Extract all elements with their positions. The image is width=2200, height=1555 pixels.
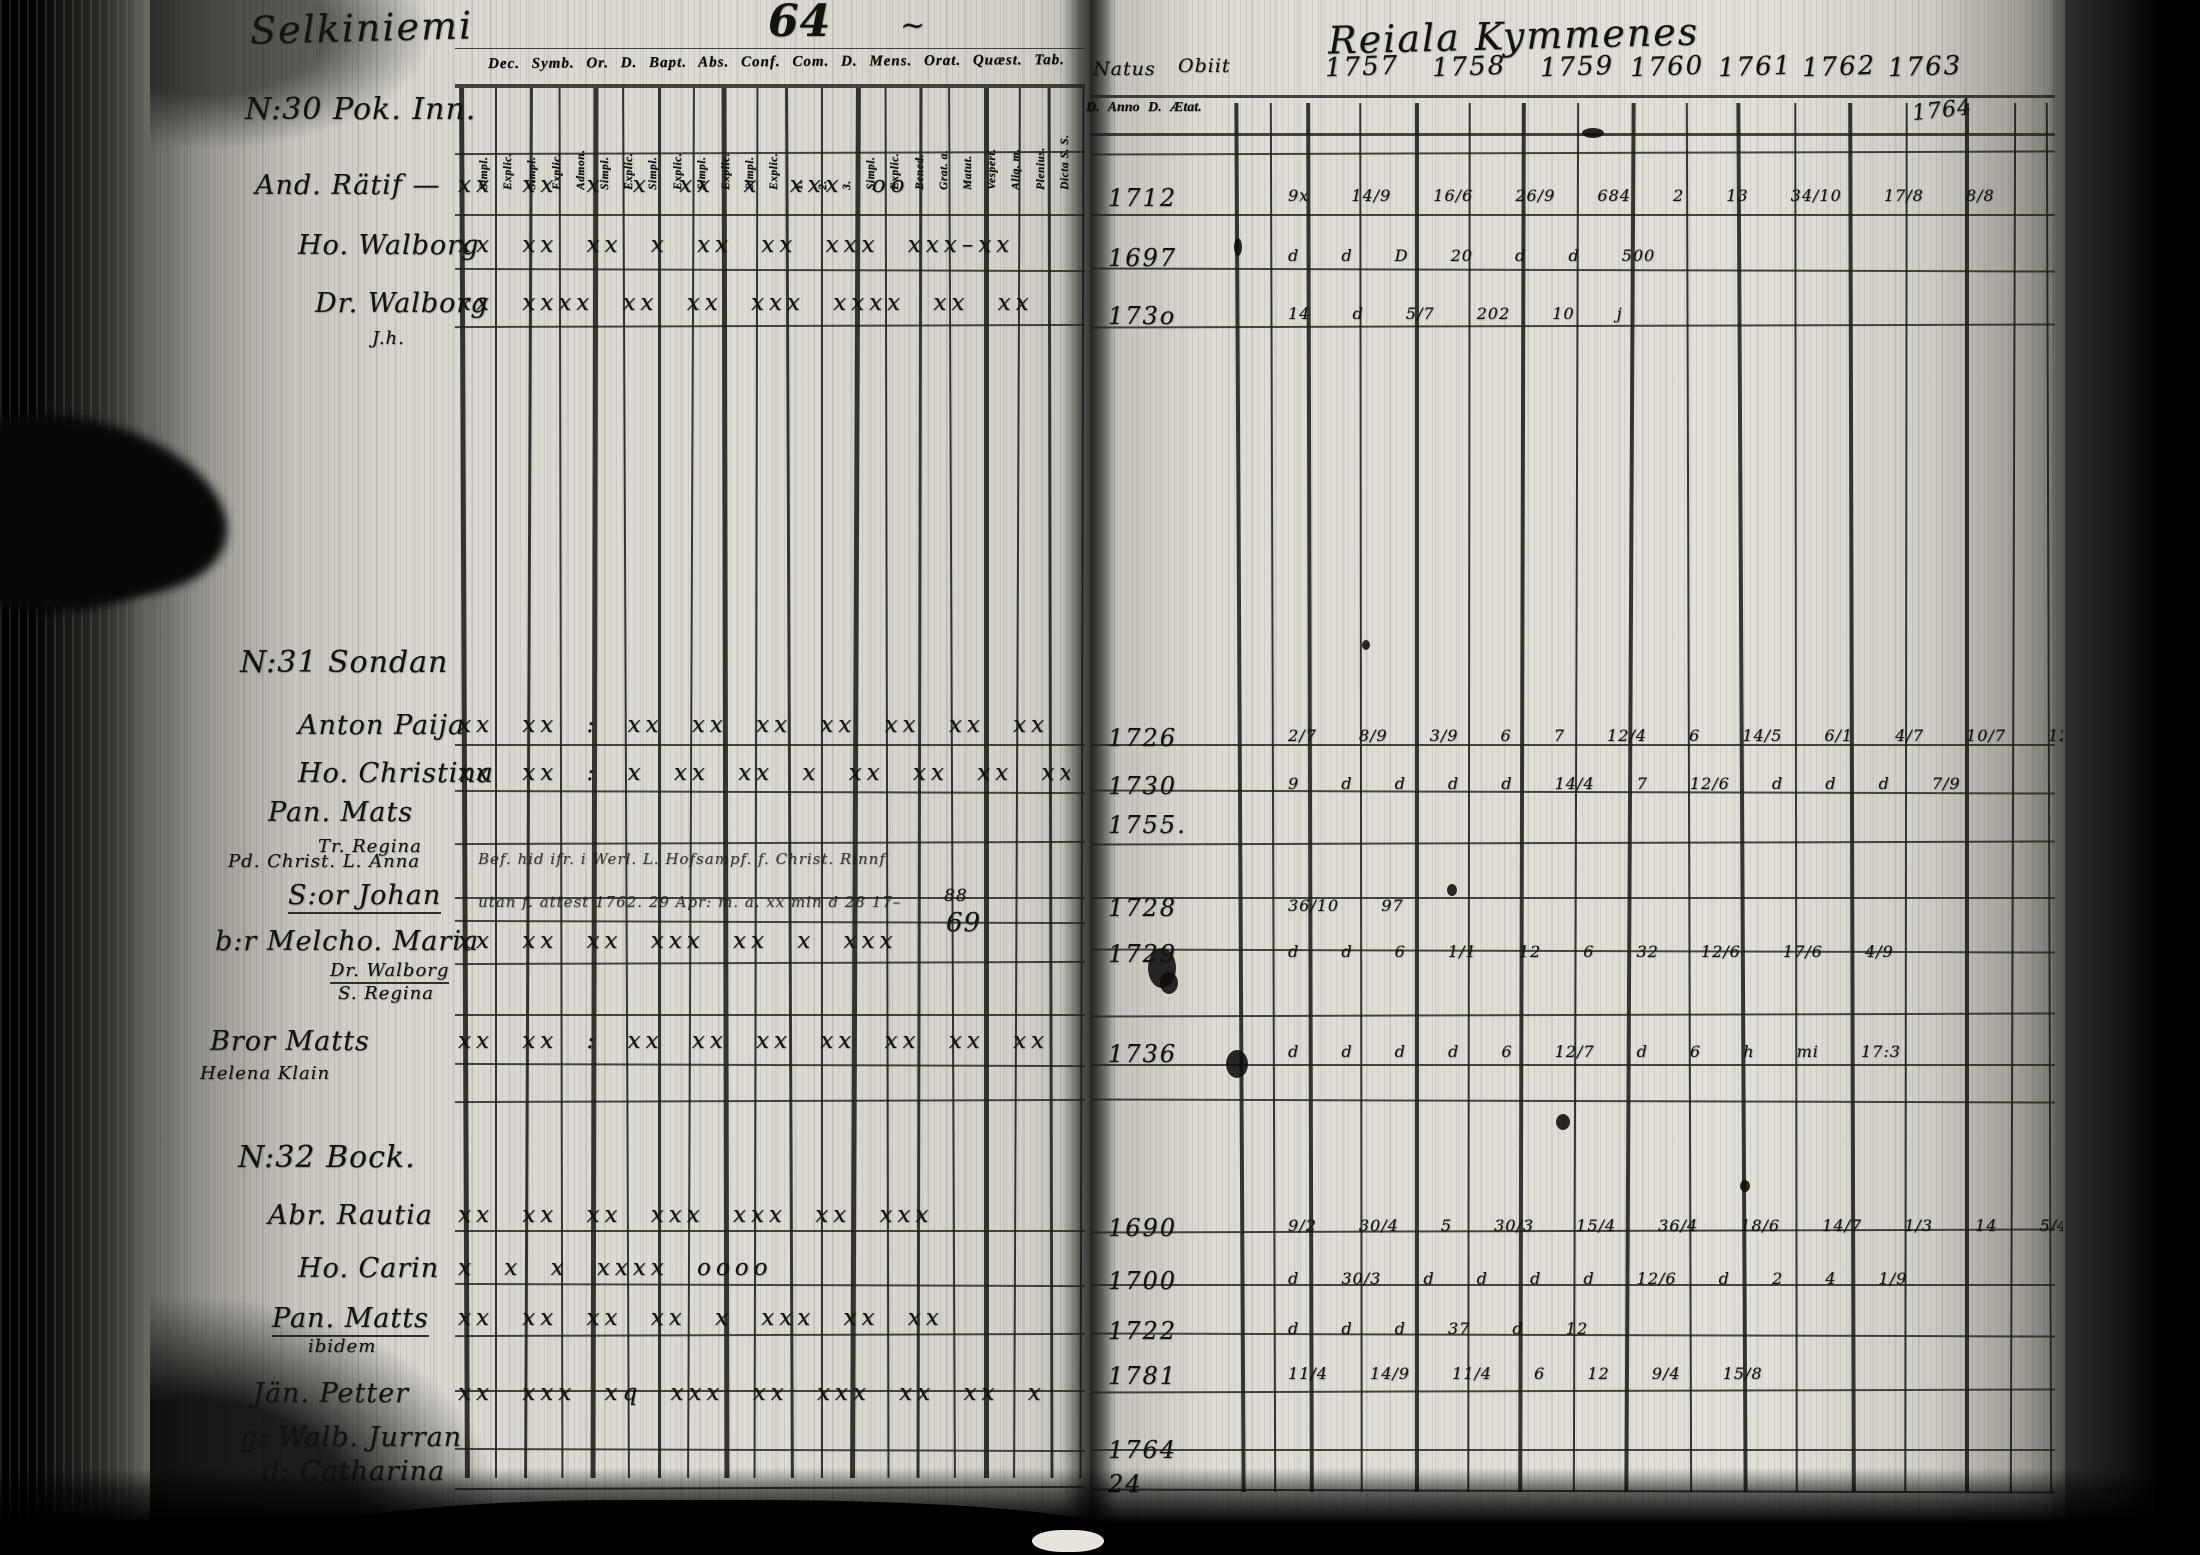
person-name: Ho. Walborg (298, 230, 479, 261)
year-label: 1758 (1431, 51, 1506, 84)
bottom-light-sliver (1032, 1530, 1104, 1552)
row-rule (455, 744, 1085, 746)
group-heading: N:31 Sondan (240, 645, 448, 680)
attendance-marks: xx xx : xx xx xx xx xx xx xx (458, 1028, 1070, 1054)
header-obiit: Obiit (1178, 55, 1231, 77)
film-edge-right (2052, 0, 2200, 1555)
page-number: 64 (768, 0, 831, 47)
year-cell-marks: 9 d d d d 14/4 7 12/6 d d d 7/9 (1288, 774, 2063, 793)
ink-blot (1234, 238, 1242, 256)
birth-year: 1736 (1108, 1040, 1177, 1068)
attendance-marks: xx xx x x xx x xxx oo (458, 172, 1070, 198)
row-rule (455, 1014, 1085, 1016)
person-name: Pan. Matts (272, 1303, 429, 1337)
year-label: 1757 (1324, 51, 1399, 84)
person-name: J.h. (372, 328, 405, 349)
ink-blot (1447, 884, 1457, 896)
birth-year: 1764 (1108, 1436, 1177, 1464)
row-rule (1092, 214, 2055, 216)
tilde-mark: ~ (900, 8, 926, 43)
person-name: Abr. Rautia (268, 1200, 433, 1231)
year-cell-marks: 9x 14/9 16/6 26/9 684 2 13 34/10 17/8 8/… (1288, 186, 2063, 205)
person-name: Anton Paija (298, 710, 465, 741)
birth-year: 1730 (1108, 772, 1177, 800)
year-cell-marks: d d d d 6 12/7 d 6 h mi 17:3 (1288, 1042, 2063, 1061)
attendance-marks: xx xxxx xx xx xxx xxxx xx xx (458, 290, 1070, 316)
year-cell-marks: 11/4 14/9 11/4 6 12 9/4 15/8 (1288, 1364, 2063, 1383)
birth-year: 1755. (1108, 811, 1187, 839)
film-edge-left (0, 0, 150, 1555)
attendance-marks: xx xx : xx xx xx xx xx xx xx (458, 712, 1070, 738)
year-cell-marks: d d D 20 d d 500 (1288, 246, 2063, 265)
birth-year: 1729 (1108, 940, 1177, 968)
birth-year: 1781 (1108, 1362, 1177, 1390)
note-mark-88: 88 (944, 886, 968, 906)
group-heading: N:32 Bock. (238, 1140, 416, 1175)
ink-blot (1582, 128, 1604, 138)
year-label: 1759 (1539, 51, 1614, 84)
year-label: 1763 (1887, 51, 1962, 84)
birth-year: 1722 (1108, 1317, 1177, 1345)
attendance-marks: xx xx xx xxx xxx xx xxx (458, 1202, 1070, 1228)
person-name: Helena Klain (200, 1063, 330, 1084)
header-natus: Natus (1093, 58, 1156, 80)
person-name: Pan. Mats (268, 797, 413, 828)
person-name: g: Walb. Jurran (240, 1422, 462, 1453)
ink-blot (1556, 1114, 1570, 1130)
attendance-marks: xx xx xx xxx xx x xxx (458, 928, 1070, 954)
year-cell-marks: d d d 37 d 12 (1288, 1319, 2063, 1338)
year-label: 1760 (1629, 51, 1704, 84)
header-rule (455, 84, 1085, 88)
person-name: b:r Melcho. Maria (215, 926, 479, 957)
birth-year: 1700 (1108, 1267, 1177, 1295)
year-cell-marks: 14 d 5/7 202 10 j (1288, 304, 2063, 323)
person-name: S:or Johan (288, 880, 441, 914)
header-rule (455, 48, 1085, 49)
person-name: And. Rätif — (255, 170, 440, 201)
bottom-shadow (300, 1500, 1120, 1555)
row-rule (455, 897, 1085, 899)
person-name: Dr. Walborg (330, 960, 449, 984)
ink-blot (1362, 640, 1370, 650)
group-heading: N:30 Pok. Inn. (245, 92, 476, 127)
person-name: Ho. Carin (298, 1253, 439, 1284)
attendance-marks: xx xx xx xx x xxx xx xx (458, 1305, 1070, 1331)
attendance-marks: xx xx xx x xx xx xxx xxx–xx (458, 232, 1070, 258)
ink-blot (1740, 1180, 1750, 1192)
person-name: Bror Matts (210, 1026, 370, 1057)
attendance-marks: x x x xxxx oooo (458, 1255, 1070, 1281)
person-name: ibidem (308, 1336, 376, 1357)
year-cell-marks: 9/2 30/4 5 30/3 15/4 36/4 18/6 14/7 1/3 … (1288, 1216, 2063, 1235)
person-name: S. Regina (338, 983, 434, 1004)
left-page-title: Selkiniemi (249, 3, 473, 52)
ink-blot (1160, 972, 1178, 994)
person-name: Pd. Christ. L. Anna (228, 851, 420, 872)
birth-year: 1690 (1108, 1214, 1177, 1242)
year-cell-marks: d d 6 1/1 12 6 32 12/6 17/6 4/9 (1288, 942, 2063, 961)
year-cell-marks: 2/7 8/9 3/9 6 7 12/4 6 14/5 6/1 4/7 10/7… (1288, 726, 2063, 745)
header-rule (1090, 95, 2055, 98)
row-rule (455, 214, 1085, 216)
header-rule (1090, 133, 2055, 136)
birth-year: 1728 (1108, 894, 1177, 922)
birth-year: 1697 (1108, 244, 1177, 272)
attendance-marks: xx xxx xq xxx xx xxx xx xx x (458, 1380, 1070, 1406)
attendance-marks: xx xx : x xx xx x xx xx xx xx (458, 760, 1070, 786)
year-cell-marks: 36/10 97 (1288, 896, 2063, 915)
row-rule (455, 1230, 1085, 1232)
ink-blot (1226, 1050, 1248, 1078)
year-label: 1762 (1801, 51, 1876, 84)
year-label: 1761 (1717, 51, 1792, 84)
header-anno-aetat: D. Anno D. Ætat. (1086, 100, 1202, 116)
microfilm-scan: Selkiniemi 64 ~ Reiala Kymmenes Dec. Sym… (0, 0, 2200, 1555)
row-rule (1092, 1449, 2055, 1451)
birth-year: 1726 (1108, 724, 1177, 752)
person-name: Jän. Petter (253, 1378, 409, 1409)
birth-year: 173o (1108, 302, 1176, 330)
year-cell-marks: d 30/3 d d d d 12/6 d 2 4 1/9 (1288, 1269, 2063, 1288)
birth-year: 1712 (1108, 184, 1177, 212)
